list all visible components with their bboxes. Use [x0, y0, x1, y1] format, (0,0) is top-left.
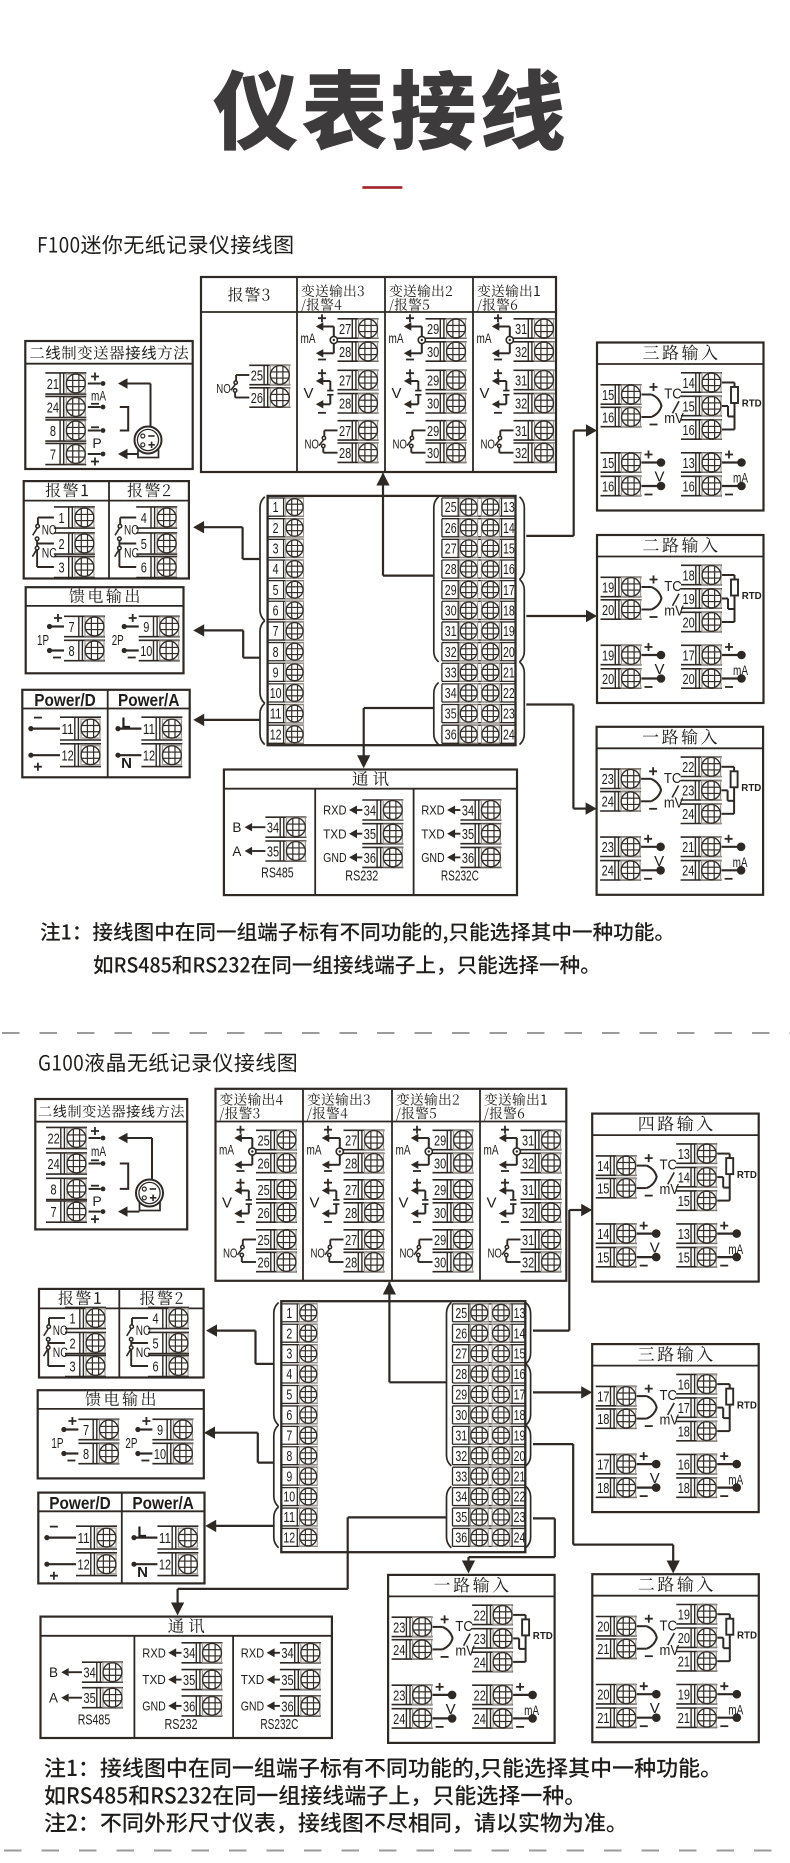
svg-text:16: 16 [602, 409, 614, 426]
svg-text:5: 5 [141, 536, 147, 553]
svg-text:13: 13 [503, 500, 515, 516]
svg-text:8: 8 [273, 645, 279, 661]
svg-text:5: 5 [273, 583, 279, 599]
svg-text:28: 28 [345, 1205, 357, 1222]
svg-text:mA: mA [389, 330, 404, 346]
svg-text:20: 20 [602, 602, 614, 619]
svg-text:32: 32 [515, 396, 527, 413]
svg-text:17: 17 [514, 1388, 526, 1404]
svg-text:mA: mA [307, 1141, 322, 1157]
svg-text:30: 30 [445, 604, 457, 620]
svg-text:21: 21 [678, 1654, 690, 1671]
svg-text:22: 22 [503, 686, 515, 702]
svg-text:TXD: TXD [323, 826, 347, 841]
svg-text:6: 6 [286, 1408, 292, 1424]
svg-text:35: 35 [267, 843, 279, 860]
svg-text:RTD: RTD [742, 398, 762, 410]
svg-text:31: 31 [515, 321, 527, 338]
svg-text:21: 21 [47, 376, 59, 393]
svg-text:30: 30 [427, 445, 439, 462]
svg-text:29: 29 [427, 423, 439, 440]
svg-text:V: V [650, 1700, 660, 1717]
svg-text:V: V [654, 661, 664, 678]
svg-text:B: B [232, 820, 241, 835]
svg-text:28: 28 [339, 445, 351, 462]
svg-text:TC: TC [664, 387, 682, 403]
svg-text:NO: NO [53, 1323, 68, 1338]
svg-text:24: 24 [474, 1711, 486, 1728]
svg-text:GND: GND [421, 850, 445, 865]
svg-text:17: 17 [678, 1400, 690, 1417]
svg-text:20: 20 [597, 1687, 609, 1704]
svg-text:24: 24 [503, 727, 515, 743]
svg-text:3: 3 [70, 1358, 76, 1375]
svg-text:9: 9 [273, 665, 279, 681]
svg-text:25: 25 [251, 367, 263, 384]
svg-text:B: B [49, 1665, 58, 1680]
svg-text:26: 26 [445, 521, 457, 537]
svg-text:29: 29 [427, 372, 439, 389]
svg-text:7: 7 [273, 624, 279, 640]
svg-text:19: 19 [683, 591, 695, 608]
svg-text:mA: mA [91, 388, 106, 404]
svg-text:25: 25 [258, 1132, 270, 1149]
svg-text:GND: GND [323, 850, 347, 865]
svg-text:24: 24 [602, 794, 614, 811]
svg-text:14: 14 [683, 375, 695, 392]
svg-text:29: 29 [434, 1182, 446, 1199]
svg-text:29: 29 [455, 1388, 467, 1404]
svg-text:TC: TC [659, 1388, 677, 1404]
svg-text:4: 4 [286, 1367, 292, 1383]
svg-text:V: V [309, 1194, 319, 1211]
svg-text:25: 25 [445, 500, 457, 516]
svg-text:NO: NO [124, 523, 139, 538]
svg-text:NC: NC [136, 1345, 151, 1360]
svg-text:24: 24 [48, 1156, 60, 1173]
svg-text:Power/A: Power/A [118, 690, 180, 710]
svg-text:32: 32 [522, 1205, 534, 1222]
svg-text:31: 31 [515, 372, 527, 389]
svg-text:33: 33 [445, 665, 457, 681]
svg-text:mA: mA [728, 1241, 743, 1257]
svg-text:35: 35 [84, 1690, 96, 1707]
svg-text:mA: mA [301, 330, 316, 346]
svg-text:10: 10 [140, 643, 152, 660]
svg-text:V: V [654, 853, 664, 870]
svg-text:13: 13 [678, 1146, 690, 1163]
svg-text:21: 21 [503, 665, 515, 681]
svg-text:29: 29 [434, 1132, 446, 1149]
svg-text:25: 25 [258, 1232, 270, 1249]
svg-text:4: 4 [153, 1310, 159, 1327]
svg-text:25: 25 [455, 1306, 467, 1322]
svg-text:12: 12 [78, 1557, 90, 1574]
svg-text:TXD: TXD [421, 826, 445, 841]
svg-text:30: 30 [427, 396, 439, 413]
svg-text:6: 6 [273, 604, 279, 620]
svg-text:35: 35 [183, 1672, 195, 1689]
svg-text:TC: TC [455, 1619, 473, 1635]
svg-text:23: 23 [393, 1687, 405, 1704]
svg-text:15: 15 [602, 387, 614, 404]
svg-text:22: 22 [474, 1607, 486, 1624]
svg-text:mA: mA [219, 1141, 234, 1157]
svg-text:20: 20 [503, 645, 515, 661]
svg-text:NO: NO [42, 523, 57, 538]
svg-text:TC: TC [660, 1618, 678, 1634]
svg-text:RXD: RXD [241, 1645, 265, 1660]
svg-text:5: 5 [286, 1388, 292, 1404]
svg-text:19: 19 [602, 579, 614, 596]
svg-text:19: 19 [678, 1687, 690, 1704]
svg-text:V: V [650, 1470, 660, 1487]
svg-text:32: 32 [515, 344, 527, 361]
svg-text:NO: NO [399, 1246, 414, 1261]
svg-text:1P: 1P [37, 633, 49, 649]
svg-text:TC: TC [659, 1158, 677, 1174]
svg-text:35: 35 [281, 1672, 293, 1689]
svg-text:14: 14 [597, 1158, 609, 1175]
svg-text:A: A [49, 1691, 58, 1706]
svg-text:15: 15 [678, 1193, 690, 1210]
svg-text:28: 28 [445, 562, 457, 578]
svg-text:RTD: RTD [737, 1169, 757, 1181]
svg-text:34: 34 [445, 686, 457, 702]
svg-text:20: 20 [683, 614, 695, 631]
svg-text:36: 36 [364, 850, 376, 867]
svg-text:24: 24 [393, 1711, 405, 1728]
svg-text:2: 2 [58, 536, 64, 553]
svg-text:N: N [121, 755, 132, 772]
svg-text:21: 21 [678, 1710, 690, 1727]
svg-text:12: 12 [270, 727, 282, 743]
svg-text:26: 26 [258, 1205, 270, 1222]
svg-text:P: P [92, 1193, 101, 1209]
svg-text:2: 2 [286, 1326, 292, 1342]
svg-text:35: 35 [364, 826, 376, 843]
svg-text:15: 15 [503, 542, 515, 558]
svg-text:27: 27 [339, 372, 351, 389]
svg-text:34: 34 [455, 1490, 467, 1506]
svg-text:9: 9 [143, 619, 149, 636]
svg-text:RS485: RS485 [261, 866, 294, 882]
svg-text:mA: mA [728, 1701, 743, 1717]
svg-text:24: 24 [474, 1654, 486, 1671]
svg-text:NC: NC [53, 1345, 68, 1360]
svg-text:13: 13 [678, 1226, 690, 1243]
svg-text:11: 11 [62, 721, 74, 738]
svg-text:20: 20 [597, 1619, 609, 1636]
svg-text:28: 28 [345, 1254, 357, 1271]
svg-text:31: 31 [515, 423, 527, 440]
svg-text:24: 24 [682, 806, 694, 823]
svg-text:28: 28 [455, 1367, 467, 1383]
svg-text:35: 35 [462, 826, 474, 843]
svg-text:16: 16 [602, 478, 614, 495]
svg-text:NC: NC [124, 546, 139, 561]
svg-text:17: 17 [597, 1457, 609, 1474]
svg-text:4: 4 [141, 510, 147, 527]
svg-text:2: 2 [70, 1335, 76, 1352]
svg-text:RS485: RS485 [78, 1712, 111, 1728]
svg-text:36: 36 [281, 1698, 293, 1715]
svg-text:2: 2 [273, 521, 279, 537]
svg-text:1: 1 [286, 1306, 292, 1322]
svg-text:7: 7 [286, 1428, 292, 1444]
svg-text:17: 17 [683, 647, 695, 664]
svg-text:31: 31 [445, 624, 457, 640]
svg-text:14: 14 [503, 521, 515, 537]
svg-text:4: 4 [273, 562, 279, 578]
svg-text:27: 27 [339, 423, 351, 440]
svg-text:mA: mA [91, 1143, 106, 1159]
svg-text:22: 22 [514, 1490, 526, 1506]
svg-text:18: 18 [503, 604, 515, 620]
svg-text:28: 28 [339, 396, 351, 413]
svg-text:12: 12 [159, 1557, 171, 1574]
svg-text:19: 19 [514, 1428, 526, 1444]
svg-text:16: 16 [678, 1377, 690, 1394]
svg-text:NO: NO [304, 437, 319, 452]
svg-text:19: 19 [503, 624, 515, 640]
svg-text:8: 8 [51, 1181, 57, 1198]
svg-text:TXD: TXD [142, 1672, 166, 1687]
svg-text:26: 26 [251, 390, 263, 407]
svg-text:34: 34 [267, 820, 279, 837]
svg-text:29: 29 [434, 1232, 446, 1249]
svg-text:8: 8 [286, 1449, 292, 1465]
svg-text:34: 34 [364, 802, 376, 819]
svg-text:22: 22 [682, 759, 694, 776]
svg-text:mA: mA [524, 1702, 539, 1718]
svg-text:P: P [92, 435, 101, 451]
svg-text:15: 15 [597, 1250, 609, 1267]
svg-text:8: 8 [50, 423, 56, 440]
svg-text:20: 20 [678, 1630, 690, 1647]
svg-text:22: 22 [48, 1130, 60, 1147]
svg-text:24: 24 [47, 399, 59, 416]
svg-text:18: 18 [597, 1480, 609, 1497]
svg-text:8: 8 [69, 643, 75, 660]
svg-text:17: 17 [503, 583, 515, 599]
svg-text:1P: 1P [51, 1436, 63, 1452]
svg-text:V: V [391, 385, 401, 402]
svg-text:18: 18 [678, 1424, 690, 1441]
svg-text:14: 14 [597, 1226, 609, 1243]
svg-text:32: 32 [445, 645, 457, 661]
svg-text:35: 35 [445, 707, 457, 723]
svg-text:15: 15 [678, 1250, 690, 1267]
svg-text:A: A [232, 844, 241, 859]
svg-text:NO: NO [310, 1246, 325, 1261]
svg-text:GND: GND [142, 1699, 166, 1714]
svg-text:31: 31 [522, 1182, 534, 1199]
svg-text:29: 29 [427, 321, 439, 338]
svg-text:36: 36 [445, 727, 457, 743]
svg-text:27: 27 [345, 1182, 357, 1199]
svg-text:V: V [650, 1240, 660, 1257]
svg-text:13: 13 [514, 1306, 526, 1322]
svg-text:11: 11 [78, 1530, 90, 1547]
svg-text:8: 8 [83, 1446, 89, 1463]
svg-text:RS232: RS232 [345, 869, 378, 885]
svg-text:12: 12 [283, 1531, 295, 1547]
svg-text:17: 17 [597, 1389, 609, 1406]
svg-text:TC: TC [664, 579, 682, 595]
svg-text:V: V [654, 469, 664, 486]
svg-text:NO: NO [480, 437, 495, 452]
svg-text:mA: mA [396, 1141, 411, 1157]
svg-text:14: 14 [678, 1170, 690, 1187]
svg-text:33: 33 [455, 1469, 467, 1485]
svg-text:RXD: RXD [142, 1645, 166, 1660]
svg-text:34: 34 [183, 1645, 195, 1662]
svg-text:26: 26 [258, 1254, 270, 1271]
svg-text:30: 30 [427, 344, 439, 361]
svg-text:9: 9 [286, 1469, 292, 1485]
svg-text:21: 21 [514, 1469, 526, 1485]
svg-text:16: 16 [683, 422, 695, 439]
svg-text:18: 18 [683, 567, 695, 584]
svg-text:V: V [303, 385, 313, 402]
svg-text:NC: NC [42, 546, 57, 561]
svg-text:RTD: RTD [737, 1399, 757, 1411]
svg-text:13: 13 [683, 455, 695, 472]
svg-text:NO: NO [136, 1323, 151, 1338]
svg-text:TXD: TXD [241, 1672, 265, 1687]
svg-text:31: 31 [522, 1232, 534, 1249]
svg-text:28: 28 [339, 344, 351, 361]
svg-text:mA: mA [477, 330, 492, 346]
svg-text:24: 24 [514, 1531, 526, 1547]
svg-text:NO: NO [223, 1246, 238, 1261]
svg-text:36: 36 [462, 850, 474, 867]
svg-text:7: 7 [50, 446, 56, 463]
svg-text:mA: mA [733, 470, 748, 486]
svg-text:19: 19 [678, 1607, 690, 1624]
svg-text:3: 3 [273, 542, 279, 558]
svg-text:6: 6 [153, 1358, 159, 1375]
svg-text:mA: mA [733, 854, 748, 870]
svg-text:mA: mA [484, 1141, 499, 1157]
svg-text:NO: NO [392, 437, 407, 452]
svg-text:5: 5 [153, 1335, 159, 1352]
svg-text:TC: TC [664, 771, 682, 787]
svg-text:36: 36 [183, 1698, 195, 1715]
svg-text:L: L [121, 714, 130, 731]
svg-text:20: 20 [683, 671, 695, 688]
svg-text:mA: mA [728, 1471, 743, 1487]
svg-text:V: V [446, 1701, 456, 1718]
svg-text:16: 16 [683, 478, 695, 495]
svg-text:27: 27 [455, 1347, 467, 1363]
svg-text:NO: NO [487, 1246, 502, 1261]
svg-text:24: 24 [602, 863, 614, 880]
svg-text:30: 30 [434, 1155, 446, 1172]
svg-text:34: 34 [462, 802, 474, 819]
svg-text:14: 14 [514, 1326, 526, 1342]
svg-text:16: 16 [514, 1367, 526, 1383]
svg-text:16: 16 [678, 1457, 690, 1474]
svg-text:23: 23 [682, 783, 694, 800]
svg-text:27: 27 [339, 321, 351, 338]
svg-text:2P: 2P [112, 633, 124, 649]
svg-text:23: 23 [474, 1631, 486, 1648]
svg-text:32: 32 [522, 1155, 534, 1172]
svg-text:24: 24 [682, 863, 694, 880]
svg-text:15: 15 [514, 1347, 526, 1363]
svg-text:23: 23 [602, 839, 614, 856]
svg-text:18: 18 [514, 1408, 526, 1424]
svg-text:31: 31 [522, 1132, 534, 1149]
svg-text:NO: NO [216, 381, 231, 396]
svg-text:L: L [137, 1523, 146, 1540]
svg-text:23: 23 [393, 1619, 405, 1636]
svg-text:31: 31 [455, 1428, 467, 1444]
svg-text:RTD: RTD [741, 782, 761, 794]
svg-text:23: 23 [514, 1510, 526, 1526]
svg-text:Power/D: Power/D [34, 690, 96, 710]
svg-text:7: 7 [51, 1204, 57, 1221]
svg-text:27: 27 [345, 1232, 357, 1249]
svg-text:24: 24 [393, 1642, 405, 1659]
svg-text:18: 18 [678, 1480, 690, 1497]
svg-text:7: 7 [83, 1422, 89, 1439]
svg-text:V: V [398, 1194, 408, 1211]
svg-text:11: 11 [159, 1530, 171, 1547]
svg-text:7: 7 [69, 619, 75, 636]
svg-text:34: 34 [84, 1665, 96, 1682]
svg-text:11: 11 [143, 721, 155, 738]
svg-text:29: 29 [445, 583, 457, 599]
svg-text:1: 1 [70, 1310, 76, 1327]
svg-text:36: 36 [455, 1531, 467, 1547]
svg-text:10: 10 [270, 686, 282, 702]
svg-text:21: 21 [597, 1710, 609, 1727]
svg-text:27: 27 [345, 1132, 357, 1149]
svg-text:12: 12 [62, 748, 74, 765]
svg-text:27: 27 [445, 542, 457, 558]
svg-text:26: 26 [455, 1326, 467, 1342]
svg-text:23: 23 [503, 707, 515, 723]
svg-text:N: N [137, 1564, 148, 1581]
svg-text:35: 35 [455, 1510, 467, 1526]
svg-text:18: 18 [597, 1411, 609, 1428]
svg-text:11: 11 [283, 1510, 295, 1526]
svg-text:19: 19 [602, 647, 614, 664]
svg-text:2P: 2P [125, 1436, 137, 1452]
svg-text:10: 10 [283, 1490, 295, 1506]
svg-text:RS232C: RS232C [260, 1717, 298, 1733]
svg-text:30: 30 [434, 1205, 446, 1222]
svg-text:RTD: RTD [737, 1629, 757, 1641]
svg-text:22: 22 [474, 1687, 486, 1704]
svg-text:32: 32 [522, 1254, 534, 1271]
svg-text:11: 11 [270, 707, 282, 723]
svg-text:V: V [479, 385, 489, 402]
svg-text:GND: GND [241, 1699, 265, 1714]
svg-text:23: 23 [602, 771, 614, 788]
svg-text:20: 20 [602, 671, 614, 688]
svg-text:3: 3 [286, 1347, 292, 1363]
svg-text:RXD: RXD [421, 803, 445, 818]
svg-text:RXD: RXD [323, 803, 347, 818]
svg-text:V: V [486, 1194, 496, 1211]
svg-text:28: 28 [345, 1155, 357, 1172]
svg-text:16: 16 [503, 562, 515, 578]
svg-text:34: 34 [281, 1645, 293, 1662]
